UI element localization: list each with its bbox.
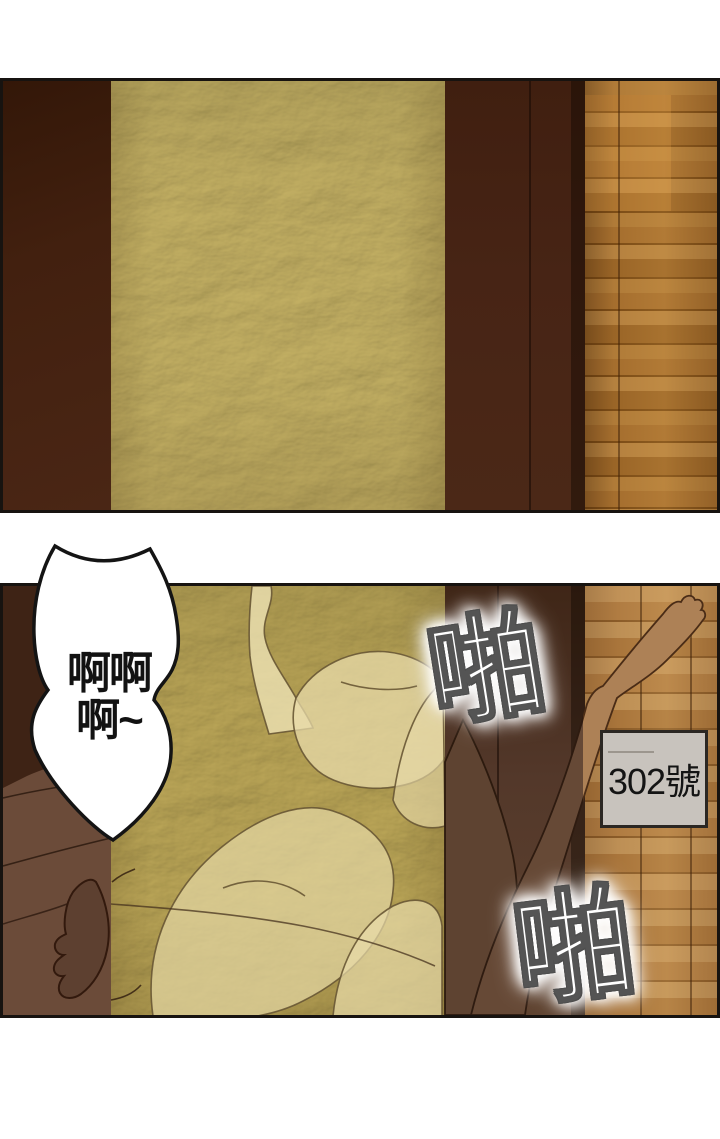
foot-silhouette xyxy=(54,880,109,998)
door-frame-right xyxy=(445,81,585,510)
door-seam xyxy=(529,81,531,510)
room-number-sign: 302號 xyxy=(600,730,708,828)
sign-detail-line xyxy=(608,751,654,753)
sfx-slap-top: 啪 xyxy=(386,583,585,747)
door-frame-left xyxy=(3,81,111,510)
comic-page: 302號 xyxy=(0,0,720,1139)
glass-shading xyxy=(111,81,445,510)
panel-top-door-scene: 302號 xyxy=(0,78,720,513)
speech-line-1: 啊啊 xyxy=(53,650,165,697)
door-edge-shadow xyxy=(571,81,585,510)
sfx-slap-bottom: 啪 xyxy=(473,851,674,1018)
speech-line-2: 啊~ xyxy=(53,697,165,744)
hallway-wood-wall: 302號 xyxy=(585,81,717,510)
speech-bubble-text: 啊啊 啊~ xyxy=(53,650,165,744)
frosted-glass-door xyxy=(111,81,445,510)
wood-plank-seam xyxy=(618,81,620,510)
room-number-text: 302號 xyxy=(608,753,700,805)
